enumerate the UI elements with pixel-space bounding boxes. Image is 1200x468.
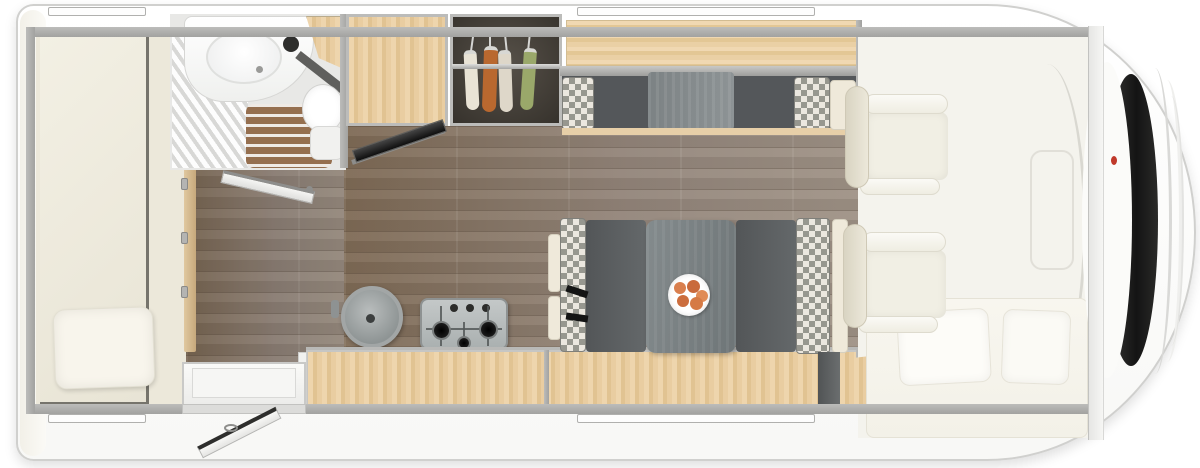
cab-seat-passenger-armrest-bottom xyxy=(858,316,938,333)
sideboard xyxy=(306,350,858,406)
sink-handle xyxy=(331,300,339,318)
hob-burner xyxy=(479,320,498,339)
cab-seat-driver-cushion xyxy=(866,112,948,180)
bench-cushion-left xyxy=(562,77,594,130)
hob-burner xyxy=(432,321,451,340)
motorhome-floorplan xyxy=(0,0,1200,468)
entry-step-inner xyxy=(192,368,296,398)
cab-seat-driver-backrest xyxy=(845,86,869,188)
toilet-bowl xyxy=(302,84,344,132)
dinette-backrest-right xyxy=(796,218,830,354)
dashboard-console xyxy=(1030,150,1074,270)
bench-center-panel xyxy=(648,72,734,130)
cab-gap-shadow xyxy=(818,352,840,404)
drain-dot xyxy=(256,66,263,73)
bench-base-strip xyxy=(562,128,860,135)
toilet-base xyxy=(310,126,344,160)
brand-badge xyxy=(1111,156,1117,165)
hinge xyxy=(181,178,188,190)
bottom-wall-right xyxy=(306,404,1090,414)
hinge xyxy=(181,286,188,298)
wardrobe-rail xyxy=(452,64,560,69)
cab-seat-driver-armrest-top xyxy=(864,94,948,114)
entry-sill xyxy=(182,404,306,414)
bedroom-partition-wall xyxy=(184,168,196,352)
window-top-right xyxy=(577,7,815,16)
hood-line xyxy=(1158,96,1184,346)
top-wall xyxy=(26,27,1090,37)
garment xyxy=(482,46,498,112)
cab-seat-passenger-cushion xyxy=(864,250,946,318)
bed-pillow xyxy=(53,306,156,389)
window-bottom-right xyxy=(577,414,815,423)
cab-seat-passenger-armrest-top xyxy=(862,232,946,252)
rear-wall xyxy=(26,27,35,414)
faucet xyxy=(283,36,299,52)
dinette-seat-right xyxy=(736,220,796,352)
food-item xyxy=(674,282,686,294)
bench-cushion-right xyxy=(794,77,830,130)
sideboard-divider xyxy=(544,350,549,406)
window-top-left xyxy=(48,7,146,16)
dinette-backrest-left xyxy=(560,218,586,352)
garment xyxy=(498,50,513,112)
hob-knob xyxy=(466,304,474,312)
cab-bed-pillow-2 xyxy=(1001,309,1072,385)
bottom-wall-left xyxy=(26,404,182,414)
cab-seat-passenger-backrest xyxy=(843,224,867,328)
cab-seat-driver-armrest-bottom xyxy=(860,178,940,195)
hob-knob xyxy=(450,304,458,312)
entry-door-handle xyxy=(224,424,238,432)
food-item xyxy=(677,295,689,307)
washbasin-bowl xyxy=(206,30,282,84)
dinette-seat-left xyxy=(586,220,646,352)
a-pillar-band xyxy=(1088,26,1104,440)
hinge xyxy=(181,232,188,244)
window-bottom-left xyxy=(48,414,146,423)
food-item xyxy=(690,297,703,310)
bathroom-door-handle xyxy=(306,186,313,193)
sink-drain xyxy=(366,314,375,323)
